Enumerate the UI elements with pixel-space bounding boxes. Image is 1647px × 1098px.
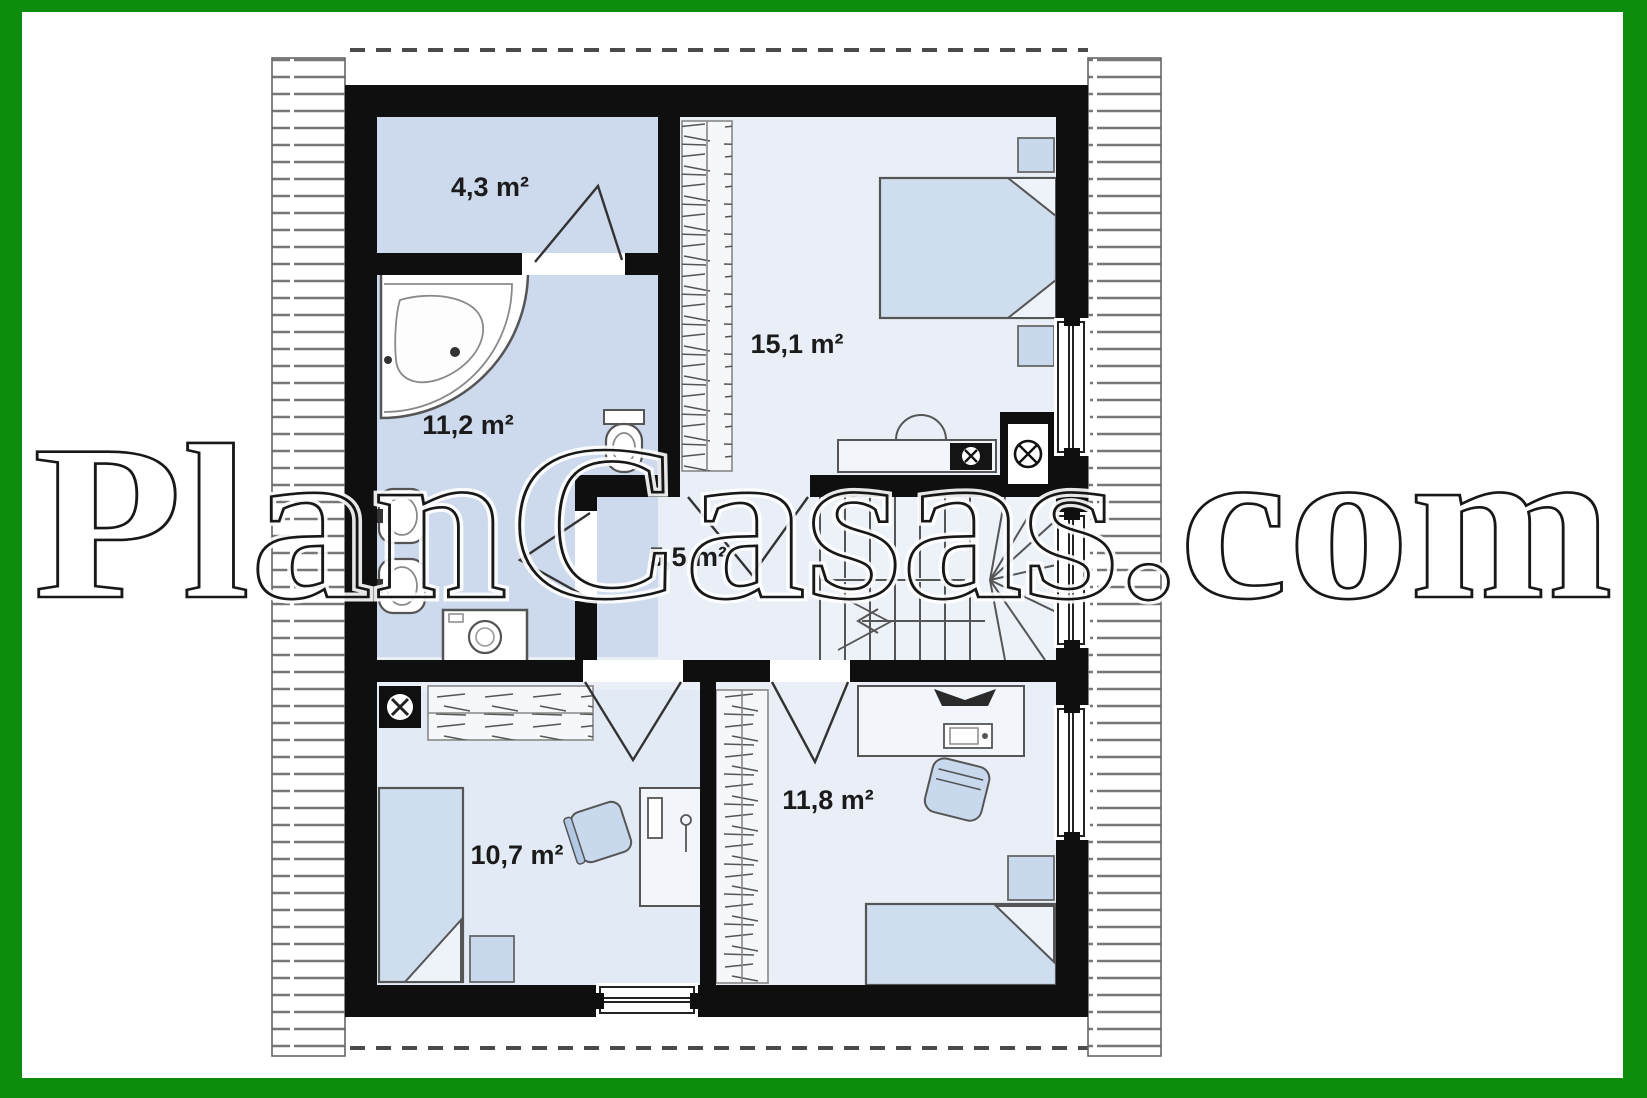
single-bed-icon [379,788,463,982]
wall-toilet-room-b [377,253,522,275]
nightstand-icon [1018,138,1054,172]
wall-south-e3 [850,660,1056,682]
vent-icon [379,686,421,728]
desk-icon [640,788,702,906]
wardrobe-icon-bedroom-right [716,690,768,983]
frame-top [0,0,1647,12]
frame-right [1623,0,1647,1098]
wall-south-e1 [377,660,583,682]
single-bed-icon [866,904,1056,985]
double-bed-icon [880,178,1056,318]
wall-toilet-room-stub [625,253,658,275]
room-label-bedroom-right: 11,8 m² [782,785,874,815]
room-label-bedroom-main: 15,1 m² [750,329,843,359]
wardrobe-icon-bedroom-left [428,686,593,740]
nightstand-icon [1018,326,1054,366]
nightstand-icon [1008,856,1054,900]
room-label-bedroom-left: 10,7 m² [470,840,563,870]
watermark: PlanCasas.com PlanCasas.com [33,400,1613,646]
wall-south-e2 [683,660,770,682]
frame-bottom [0,1078,1647,1098]
watermark-text: PlanCasas.com [33,400,1613,646]
monitor-icon [648,798,662,838]
room-label-toilet-room: 4,3 m² [451,172,529,202]
wall-partition-bottom [700,682,716,985]
desk-icon [858,686,1024,756]
window-icon-bedroom-left [596,983,698,1019]
frame-left [0,0,22,1098]
window-icon-bedroom-right [1054,705,1090,840]
nightstand-icon [470,936,514,982]
floor-plan-canvas: 4,3 m² 11,2 m² 15,1 m² 5,5 m² 10,7 m² 11… [0,0,1647,1098]
